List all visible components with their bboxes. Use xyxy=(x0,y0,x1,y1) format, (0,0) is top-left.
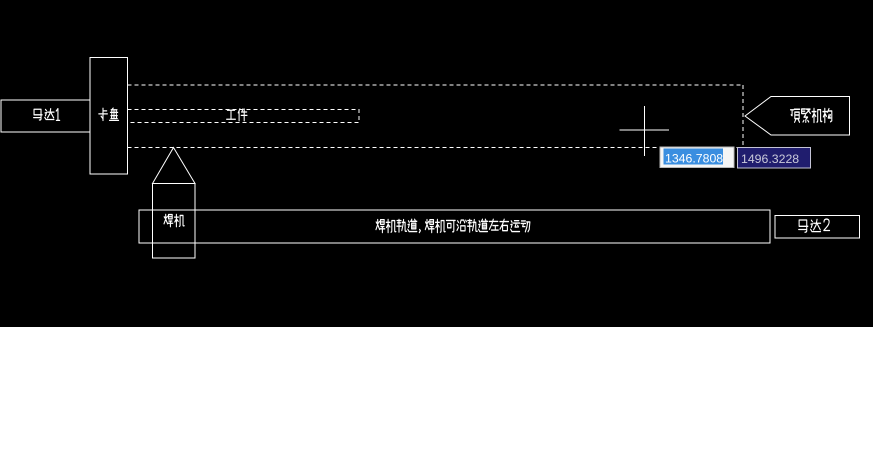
svg-text:1346.7808: 1346.7808 xyxy=(665,152,723,166)
svg-text:1496.3228: 1496.3228 xyxy=(741,152,799,166)
